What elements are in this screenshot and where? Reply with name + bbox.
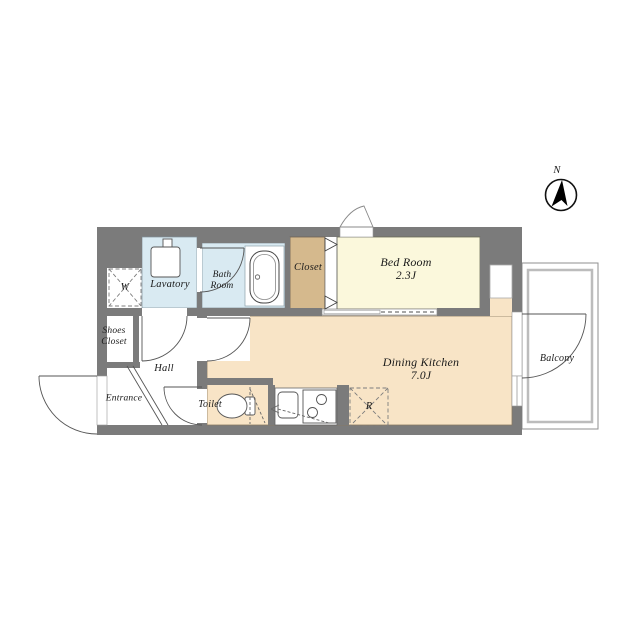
balcony-door-opening <box>512 312 522 376</box>
entrance-door-swing <box>39 376 97 434</box>
shoes-closet-label: Shoes Closet <box>101 326 126 348</box>
bedroom-sliding-door <box>322 309 437 315</box>
window-swing-icon <box>340 206 373 227</box>
balcony-area <box>522 263 598 429</box>
entrance-label: Entrance <box>106 393 142 404</box>
dining-kitchen-size-label: 7.0J <box>411 370 431 384</box>
fridge-symbol-label: R <box>366 401 373 413</box>
toilet-icon <box>217 394 255 418</box>
dk-door-swing-area <box>207 316 250 361</box>
lavatory-door-opening <box>142 308 187 316</box>
balcony-label: Balcony <box>540 353 574 365</box>
pipe-space <box>490 265 512 298</box>
bathroom-label: Bath Room <box>211 270 234 292</box>
compass-icon <box>546 180 577 211</box>
bathtub-icon <box>250 251 279 303</box>
toilet-label: Toilet <box>198 399 222 411</box>
dining-kitchen-floor-arm <box>490 298 512 316</box>
kitchen-counter <box>275 388 337 425</box>
floorplan-linework <box>0 0 640 640</box>
hall-label: Hall <box>154 363 173 375</box>
bedroom-label: Bed Room <box>380 255 431 269</box>
washer-symbol-label: W <box>121 282 130 294</box>
bath-door-opening <box>197 248 202 292</box>
lavatory-label: Lavatory <box>150 279 190 291</box>
compass-north-label: N <box>553 165 560 177</box>
stove-icon <box>303 390 336 423</box>
bedroom-window <box>340 227 373 237</box>
floorplan-canvas: Lavatory Bath Room Closet Bed Room 2.3J … <box>0 0 640 640</box>
closet-label: Closet <box>294 262 322 274</box>
dining-kitchen-label: Dining Kitchen <box>383 355 459 369</box>
dk-door-opening <box>197 318 207 361</box>
bedroom-size-label: 2.3J <box>396 270 416 284</box>
